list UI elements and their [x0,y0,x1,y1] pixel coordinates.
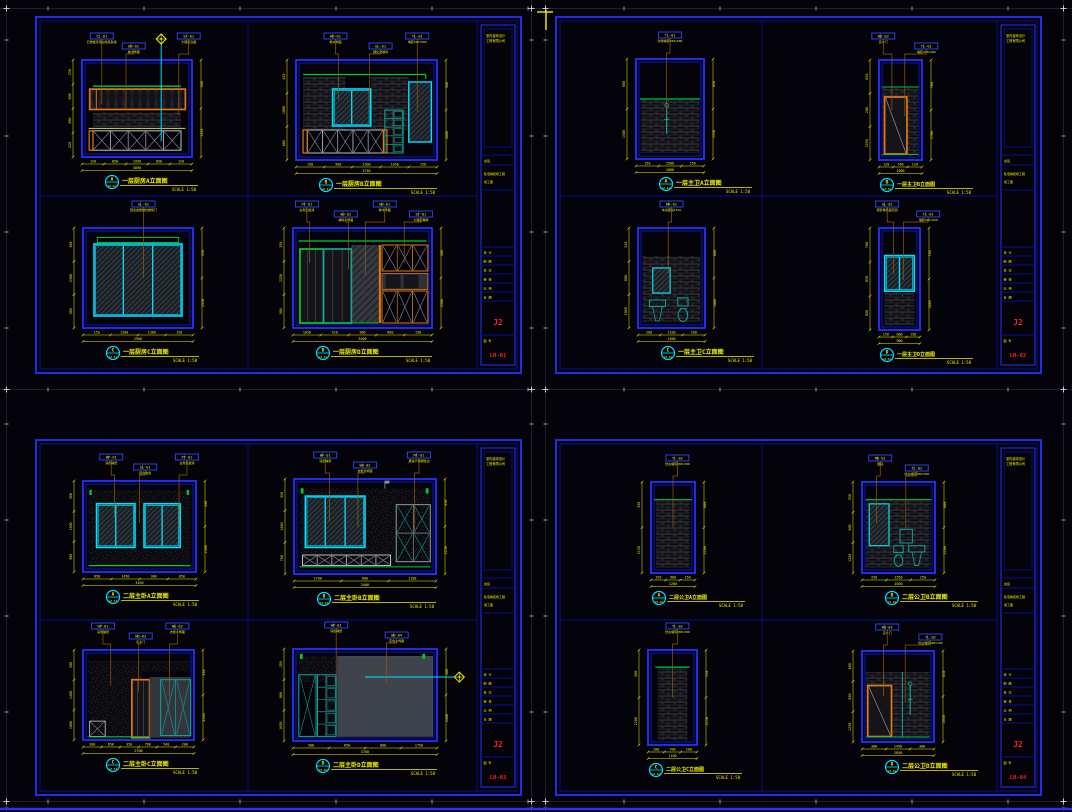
callout-code: ST-01 [183,34,194,38]
callout-code: TL-01 [665,33,676,37]
dim-text: 200 [182,742,188,746]
dim-text: 1700 [930,131,934,139]
linework [385,481,389,483]
dim-total: 1100 [668,754,676,758]
drawing-title-text: 一层主卫C立面图 [678,348,724,356]
dim-text: 300 [445,82,449,88]
dim-total: 1200 [669,582,677,586]
dim-text: 850 [865,310,869,316]
dim-text: 540 [163,742,169,746]
dim-text: 600 [362,576,368,580]
dim-text: 2150 [705,717,709,725]
title-bubble-code: LH-02 [664,355,672,359]
drawing-title-text: 一层主卫A立面图 [676,179,722,187]
dim-text: 260 [865,107,869,113]
title-bubble-letter: B [323,594,326,600]
dim-text: 1800 [713,299,717,307]
dim-text: 200 [691,330,697,334]
title-block-row-label: 比 例 [484,285,492,290]
scale-label: SCALE 1:50 [719,603,744,608]
scale-label: SCALE 1:50 [952,603,977,608]
drawing-title-text: 二层主卧D立面图 [333,761,379,769]
dim-text: 300 [919,744,925,748]
drawing-title-text: 二层主卧C立面图 [123,760,169,768]
dim-text: 2350 [202,713,206,721]
company-name: 工程有限公司 [486,38,505,43]
project-name: 私宅精装修工程 [1004,171,1025,176]
sheet-number-label: 图 号 [484,760,492,765]
surface-hatch [351,245,380,323]
dim-text: 900 [622,81,626,87]
scale-label: SCALE 1:50 [726,189,751,194]
callout-code: TL-01 [921,44,932,48]
dim-text: 250 [920,575,926,579]
dim-text: 850 [94,574,100,578]
sign-label: 会签 [1004,158,1010,163]
linework [394,146,402,152]
dim-total: 2700 [134,749,142,753]
elevation-marker-icon [160,38,162,40]
scale-label: SCALE 1:50 [406,358,431,363]
title-bubble-code: LH-02 [662,186,670,190]
dim-total: 2050 [894,751,902,755]
callout-code: WD-01 [330,34,341,38]
dim-text: 2300 [69,274,73,282]
title-bubble-code: LH-02 [883,187,891,191]
dim-text: 900 [335,162,341,166]
dim-text: 300 [871,744,877,748]
title-bubble-code: LH-01 [109,355,117,359]
title-bubble-code: LH-04 [888,600,896,604]
callout-code: CL-01 [96,34,107,38]
dim-text: 520 [624,242,628,248]
dim-text: 1500 [362,162,370,166]
drawing-title-text: 一层厨房A立面图 [122,177,168,185]
drawing-title-text: 一层主卫B立面图 [897,181,935,188]
title-bubble-code: LH-03 [109,599,117,603]
linework [394,137,402,143]
dim-text: 150 [690,161,696,165]
window-glass [307,498,363,546]
dim-text: 150 [910,332,916,336]
dim-text: 880 [624,275,628,281]
job-number: J2 [493,318,503,327]
sheet-number-label: 图 号 [1004,760,1012,765]
callout-code: PT-01 [182,455,193,459]
dim-text: 1550 [894,575,902,579]
dim-text: 1050 [391,162,399,166]
dim-text: 300 [445,669,449,675]
linework [386,275,400,288]
title-bubble-letter: A [665,179,668,185]
stage-label: 施工图 [1004,179,1013,184]
dim-text: 550 [848,494,852,500]
dim-text: 300 [69,662,73,668]
drawing-title-text: 二层公卫C立面图 [666,766,704,773]
surface-hatch [338,656,433,736]
linework [187,490,189,495]
callout-code: MR-01 [875,456,886,460]
dim-total: 1500 [667,337,675,341]
dim-total: 1000 [896,169,904,173]
dim-text: 1050 [303,330,311,334]
surface-hatch [150,677,191,738]
surface-hatch [885,292,915,325]
dim-total: 3400 [358,337,366,341]
dim-text: 1100 [667,330,675,334]
dim-text: 1950 [200,129,204,137]
callout-code: TL-02 [672,456,683,460]
dim-text: 1400 [69,691,73,699]
callout-code: WD-01 [379,202,390,206]
callout-code: WD-02 [360,463,371,467]
title-block-row-label: 校 对 [1004,267,1012,272]
dim-text: 2200 [634,717,638,725]
dim-text: 450 [444,500,448,506]
surface-hatch [90,89,186,109]
dim-text: 420 [332,330,338,334]
door-leaf [324,249,352,323]
callout-code: WD-03 [878,34,889,38]
title-bubble-code: LH-03 [109,767,117,771]
sheet-number-label: 图 号 [1004,338,1012,343]
dim-text: 500 [308,743,314,747]
linework [394,129,402,135]
dim-text: 1250 [848,554,852,562]
dim-text: 550 [705,671,709,677]
dim-text: 350 [126,742,132,746]
scale-label: SCALE 1:50 [173,602,198,607]
dim-total: 3890 [133,166,141,170]
drawing-title-text: 一层厨房B立面图 [336,180,382,188]
title-block-row-label: 制 图 [484,258,492,263]
dim-total: 3700 [361,750,369,754]
dim-text: 1650 [928,300,932,308]
callout-code: WP-01 [320,453,331,457]
company-name: 工程有限公司 [1006,461,1025,466]
scale-label: SCALE 1:50 [173,358,198,363]
linework [327,726,335,735]
mirror [869,504,889,546]
dim-text: 880 [387,330,393,334]
dim-text: 850 [112,159,118,163]
dim-text: 300 [69,493,73,499]
dim-text: 1700 [314,576,322,580]
window-glass [96,246,181,315]
dim-text: 800 [279,692,283,698]
scale-label: SCALE 1:50 [716,775,741,780]
company-name: 室内装饰设计 [486,456,506,461]
drawing-title-text: 二层主卧B立面图 [334,594,380,602]
title-bubble-letter: C [112,760,115,766]
title-bubble-letter: C [112,348,115,354]
scale-label: SCALE 1:50 [947,190,972,195]
dim-total: 2050 [894,582,902,586]
dim-text: 1750 [415,743,423,747]
dim-text: 850 [848,693,852,699]
dim-text: 760 [145,742,151,746]
title-bubble-code: LH-04 [888,769,896,773]
linework [301,489,303,494]
dim-text: 120 [883,162,889,166]
callout-code: WP-01 [98,624,109,628]
company-name: 工程有限公司 [486,461,505,466]
title-bubble-letter: D [886,350,889,356]
dim-text: 350 [279,242,283,248]
dim-text: 300 [69,308,73,314]
dim-text: 150 [420,162,426,166]
dim-text: 350 [280,492,284,498]
dim-text: 400 [440,250,444,256]
dim-text: 500 [634,671,638,677]
linework [90,490,92,495]
dim-text: 850 [865,276,869,282]
company-name: 室内装饰设计 [486,33,506,38]
dim-text: 680 [282,140,286,146]
dim-text: 850 [156,159,162,163]
project-name: 私宅精装修工程 [1004,594,1025,599]
title-bubble-letter: A [658,593,661,599]
dim-text: 1650 [280,522,284,530]
dim-text: 600 [713,250,717,256]
title-bubble-code: LH-02 [883,357,891,361]
title-block-row-label: 日 期 [484,294,492,299]
mirror [653,268,670,293]
stage-label: 施工图 [484,602,493,607]
title-bubble-letter: D [322,348,325,354]
sheet-number: LH-02 [1010,353,1027,359]
title-block-row-label: 审 核 [484,698,492,703]
stage-label: 施工图 [1004,602,1013,607]
title-bubble-code: LH-03 [319,768,327,772]
dim-text: 2250 [279,274,283,282]
callout-code: TL-02 [672,624,683,628]
callout-code: TL-02 [911,466,922,470]
linework [300,654,302,659]
title-block-row-label: 设 计 [1004,249,1012,254]
title-bubble-letter: C [655,765,658,771]
title-bubble-code: LH-01 [322,187,330,191]
dim-text: 150 [655,575,661,579]
scale-label: SCALE 1:50 [173,770,198,775]
scale-label: SCALE 1:50 [728,358,753,363]
scale-label: SCALE 1:50 [411,190,436,195]
sign-label: 会签 [484,158,490,163]
callout-code: GL-01 [138,202,149,206]
dim-text: 980 [68,118,72,124]
drawing-title-text: 一层主卫D立面图 [897,351,935,358]
title-bubble-code: LH-03 [320,601,328,605]
dim-text: 900 [670,575,676,579]
drawing-title-text: 二层主卧A立面图 [123,592,169,600]
dim-text: 600 [943,502,947,508]
dim-text: 600 [703,502,707,508]
door-leaf [132,680,150,738]
surface-hatch [641,100,699,153]
dim-text: 150 [644,161,650,165]
title-block-row-label: 制 图 [484,680,492,685]
title-bubble-letter: B [886,180,889,186]
title-bubble-letter: D [891,762,894,768]
title-block-row-label: 制 图 [1004,258,1012,263]
dim-text: 2250 [444,546,448,554]
linework [327,701,335,710]
dim-text: 600 [848,663,852,669]
dim-text: 1000 [624,307,628,315]
title-block-row-label: 设 计 [1004,671,1012,676]
dim-text: 1450 [121,574,129,578]
project-name: 私宅精装修工程 [484,171,505,176]
stage-label: 施工图 [484,179,493,184]
title-block-row-label: 比 例 [484,707,492,712]
dim-text: 650 [942,671,946,677]
title-block-row-label: 日 期 [1004,294,1012,299]
callout-code: MR-01 [666,202,677,206]
title-block-row-label: 日 期 [484,716,492,721]
dim-text: 1000 [69,721,73,729]
dim-text: 250 [279,661,283,667]
dim-text: 700 [669,747,675,751]
dim-text: 1500 [69,522,73,530]
title-bubble-letter: A [111,177,114,183]
door-leaf [300,249,324,323]
callout-code: TL-02 [925,635,936,639]
title-block-row-label: 设 计 [484,671,492,676]
callout-code: TL-01 [923,212,934,216]
dim-text: 2600 [445,131,449,139]
dim-total: 900 [896,339,902,343]
title-bubble-code: LH-01 [319,355,327,359]
drawing-title-text: 二层公卫A立面图 [669,594,707,601]
dim-text: 600 [68,93,72,99]
dim-text: 150 [94,330,100,334]
surface-hatch [643,256,701,322]
drawing-title-text: 一层厨房C立面图 [123,348,169,356]
sheet-number: LH-01 [490,353,507,359]
dim-text: 1950 [133,159,141,163]
dim-text: 300 [151,574,157,578]
scale-label: SCALE 1:50 [947,360,972,365]
title-block-row-label: 校 对 [484,267,492,272]
linework [327,676,335,685]
dim-text: 850 [179,574,185,578]
dim-text: 250 [68,69,72,75]
dim-text: 900 [848,524,852,530]
callout-code: WD-04 [391,633,402,637]
dim-text: 420 [282,74,286,80]
linework [327,713,335,722]
scale-label: SCALE 1:50 [410,604,435,609]
title-block-row-label: 比 例 [1004,285,1012,290]
title-block-row-label: 日 期 [1004,716,1012,721]
callout-code: GL-01 [140,465,151,469]
scale-label: SCALE 1:50 [952,772,977,777]
elevation-marker-icon [458,676,460,678]
dim-text: 1300 [120,330,128,334]
sheet-number: LH-03 [490,775,507,781]
dim-text: 650 [865,74,869,80]
sheet-number-label: 图 号 [484,338,492,343]
dim-text: 2400 [445,714,449,722]
company-name: 工程有限公司 [1006,38,1025,43]
dim-text: 2050 [942,715,946,723]
callout-code: WD-03 [135,634,146,638]
dim-text: 850 [712,81,716,87]
title-bubble-letter: B [325,180,328,186]
dim-text: 1300 [148,330,156,334]
title-bubble-letter: C [667,348,670,354]
job-number: J2 [1013,740,1023,749]
sign-label: 会签 [1004,581,1010,586]
dim-text: 700 [280,555,284,561]
company-name: 室内装饰设计 [1006,33,1026,38]
dim-text: 2100 [703,546,707,554]
project-name: 私宅精装修工程 [484,594,505,599]
title-block-row-label: 审 核 [1004,276,1012,281]
callout-code: WD-02 [340,212,351,216]
linework [394,120,402,126]
drawing-title-text: 二层公卫D立面图 [902,762,948,770]
dim-total: 2900 [134,337,142,341]
dim-text: 600 [896,332,902,336]
callout-code: WD-01 [128,44,139,48]
dim-text: 150 [176,330,182,334]
title-block-row-label: 审 核 [484,276,492,281]
dim-text: 350 [201,250,205,256]
dim-text: 1490 [865,139,869,147]
dim-text: 300 [200,81,204,87]
cad-drawing-viewport[interactable]: 室内装饰设计工程有限公司会签私宅精装修工程施工图设 计制 图校 对审 核比 例日… [0,0,1072,812]
dim-text: 1250 [848,723,852,731]
dim-text: 1100 [408,576,416,580]
dim-text: 150 [307,162,313,166]
dim-text: 550 [637,502,641,508]
dim-text: 150 [685,575,691,579]
callout-code: PT-01 [301,202,312,206]
callout-code: TL-01 [412,34,423,38]
dim-text: 700 [930,82,934,88]
dim-text: 400 [204,501,208,507]
dim-text: 300 [69,242,73,248]
dim-text: 200 [653,747,659,751]
title-block-row-label: 审 核 [1004,698,1012,703]
dim-total: 1800 [666,168,674,172]
dim-text: 2550 [201,299,205,307]
linework [404,275,418,288]
dim-text: 200 [89,742,95,746]
linework [426,489,428,494]
title-block-row-label: 校 对 [1004,689,1012,694]
dim-total: 3750 [362,169,370,173]
title-bubble-code: LH-04 [652,772,660,776]
sheet-number: LH-04 [1010,775,1027,781]
dim-text: 2300 [204,545,208,553]
job-number: J2 [1013,318,1023,327]
scale-label: SCALE 1:50 [411,771,436,776]
dim-text: 150 [415,330,421,334]
dim-text: 120 [912,162,918,166]
dim-text: 900 [69,554,73,560]
dim-text: 150 [883,332,889,336]
title-block-row-label: 校 对 [484,689,492,694]
dim-text: 1550 [712,130,716,138]
dim-text: 120 [178,159,184,163]
dim-total: 3450 [135,581,143,585]
dim-text: 650 [344,743,350,747]
dim-text: 1800 [282,106,286,114]
linework [394,112,402,118]
dim-text: 900 [359,330,365,334]
